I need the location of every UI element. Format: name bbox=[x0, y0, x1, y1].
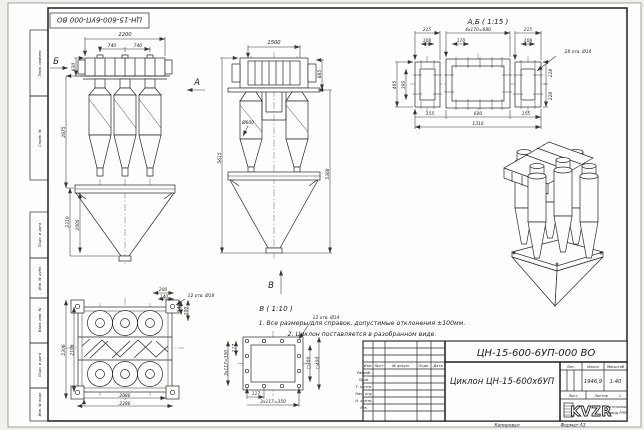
lit-label: Лит. bbox=[566, 365, 575, 369]
front-dim-pitch2: 740 bbox=[134, 43, 143, 49]
front-dim-width: 2200 bbox=[118, 32, 132, 38]
row-prov: Пров. bbox=[359, 378, 369, 382]
side-arrow-v-label: В bbox=[268, 281, 274, 291]
plan-dim-140-top: 140 bbox=[160, 294, 169, 300]
front-dim-body: 2675 bbox=[61, 126, 67, 137]
front-dim-pitch1: 740 bbox=[108, 43, 117, 49]
col-list: Лист bbox=[373, 364, 384, 368]
plan-holes-note: 12 отв. Ø18 bbox=[188, 292, 215, 299]
margin-label-inv-dubl: Инв. № дубл. bbox=[38, 266, 42, 291]
margin-label-podp2: Подп. и дата bbox=[38, 353, 42, 377]
doc-designation: ЦН-15-600-6УП-000 ВО bbox=[477, 348, 596, 359]
plan-dim-140-right: 140 bbox=[177, 304, 183, 313]
row-razrab: Разраб. bbox=[357, 371, 371, 375]
sheets-value: 1 bbox=[619, 394, 621, 398]
sheet-label: Лист bbox=[567, 394, 578, 398]
margin-label-sprav: Справ. № bbox=[38, 129, 42, 147]
note-line-1: 1. Все размеры для справок, допустимые о… bbox=[259, 320, 466, 327]
front-dim-inlet: 630 bbox=[71, 63, 77, 72]
section-ab-title: А,Б ( 1:15 ) bbox=[467, 17, 509, 26]
copied-label: Копировал bbox=[494, 423, 519, 429]
detail-v-dim-117-bottom: 117 bbox=[252, 391, 261, 397]
side-dim-height-left: 5615 bbox=[217, 152, 223, 163]
front-arrow-a-label: А bbox=[193, 78, 200, 88]
detail-v-dim-300: □300 bbox=[306, 357, 312, 370]
mass-label: Масса bbox=[587, 365, 598, 369]
section-dim-395: 395 bbox=[401, 81, 407, 90]
plan-dim-200-top: 200 bbox=[159, 287, 168, 293]
plan-dim-2106: 2106 bbox=[70, 344, 76, 355]
detail-v-dim-pitch-bottom: 3х117=350 bbox=[260, 399, 286, 405]
section-dim-155-left: 155 bbox=[426, 111, 435, 117]
engineering-drawing: Перв. примен. Справ. № Подп. и дата Инв.… bbox=[0, 0, 644, 430]
section-dim-215-left: 215 bbox=[423, 27, 432, 33]
detail-v-dim-117-left: 117 bbox=[232, 344, 238, 353]
section-dim-108-right: 108 bbox=[524, 38, 533, 44]
section-dim-620: 620 bbox=[474, 111, 483, 117]
note-line-2: 2. Циклон поставляется в разобранном вид… bbox=[288, 330, 437, 338]
row-tkontr: Т. контр. bbox=[356, 385, 373, 389]
margin-label-inv-podl: Инв. № подл. bbox=[38, 392, 42, 417]
col-data: Дата bbox=[432, 364, 442, 368]
title-block: Изм. Лист № докум. Подп. Дата Разраб. Пр… bbox=[355, 341, 628, 429]
doc-name: Циклон ЦН-15-600х6УП bbox=[450, 377, 555, 387]
margin-label-podp1: Подп. и дата bbox=[38, 223, 42, 247]
side-dim-width: 1500 bbox=[267, 40, 281, 46]
plan-dim-2306: 2306 bbox=[61, 344, 67, 355]
row-nkontr: Н. контр. bbox=[355, 399, 372, 403]
section-dim-215-right: 215 bbox=[524, 27, 533, 33]
margin-label-perv: Перв. примен. bbox=[38, 50, 42, 77]
margin-label-vzam: Взам. инв. № bbox=[38, 308, 42, 333]
top-stamp-designation: ЦН-15-600-6УП-000 ВО bbox=[57, 16, 143, 25]
plan-dim-2086: 2086 bbox=[119, 393, 130, 399]
iso-cyclones-front bbox=[528, 158, 598, 259]
side-dim-diameter: Ø600 bbox=[241, 119, 254, 126]
scale-label: Масштаб bbox=[607, 365, 625, 369]
col-izm: Изм. bbox=[364, 364, 372, 368]
scale-value: 1:40 bbox=[610, 379, 622, 385]
plan-dim-200-right: 200 bbox=[184, 307, 190, 316]
section-dim-108-left: 108 bbox=[423, 38, 432, 44]
side-dim-flange: 685 bbox=[317, 70, 323, 79]
format-label: Формат А3 bbox=[560, 423, 585, 429]
company-line-2: завод РЭП bbox=[607, 411, 627, 415]
front-arrow-b-label: Б bbox=[53, 57, 59, 67]
section-dim-495: 495 bbox=[392, 81, 398, 90]
section-dim-228-top: 228 bbox=[548, 69, 554, 78]
section-dim-170: 170 bbox=[457, 38, 466, 44]
side-dim-height-right: 5368 bbox=[325, 168, 331, 179]
front-dim-cone: 2005 bbox=[75, 219, 81, 230]
mass-value: 1946,9 bbox=[584, 379, 602, 385]
section-dim-1310: 1310 bbox=[472, 121, 483, 127]
sheets-label: Листов bbox=[593, 394, 607, 398]
col-doc: № докум. bbox=[391, 364, 410, 368]
drawing-sheet-stage: Перв. примен. Справ. № Подп. и дата Инв.… bbox=[0, 0, 644, 430]
detail-v-dim-400: □400 bbox=[315, 357, 321, 370]
front-dim-hopper: 2310 bbox=[65, 216, 71, 227]
section-dim-pitch: 4х170=680 bbox=[465, 27, 491, 33]
detail-v-dim-pitch-left: 3х117=350 bbox=[224, 350, 230, 376]
col-podp: Подп. bbox=[419, 364, 430, 368]
plan-dim-2286: 2286 bbox=[119, 401, 130, 407]
row-utv: Утв. bbox=[360, 406, 368, 410]
section-dim-228-bottom: 228 bbox=[548, 92, 554, 101]
company-line-1: Котельный bbox=[607, 405, 629, 409]
section-holes-note: 28 отв. Ø14 bbox=[565, 48, 592, 55]
detail-v-title: В ( 1:10 ) bbox=[259, 304, 293, 313]
row-nachotd: Нач. отд. bbox=[355, 392, 372, 396]
section-dim-155-right: 155 bbox=[522, 111, 531, 117]
